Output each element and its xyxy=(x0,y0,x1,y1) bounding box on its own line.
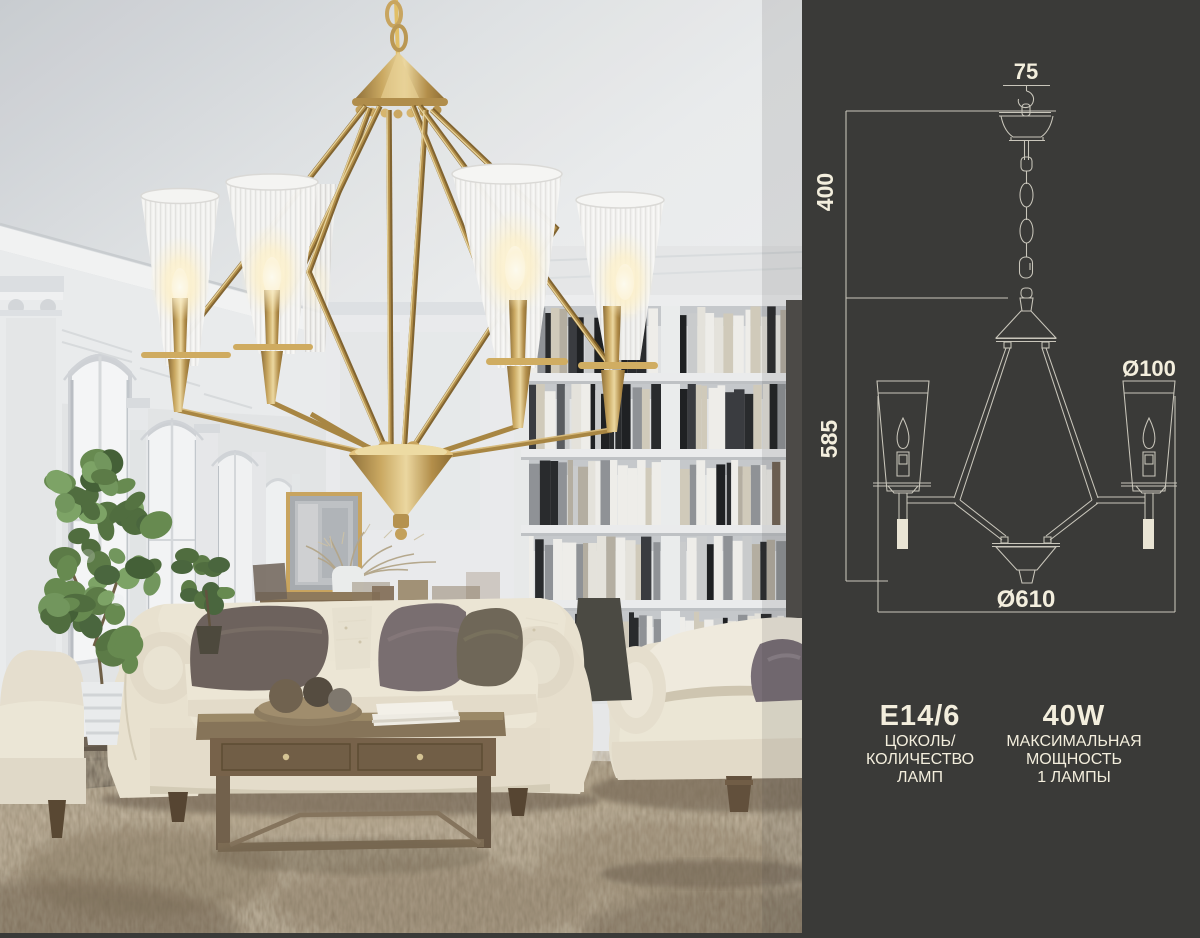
svg-text:75: 75 xyxy=(1014,59,1038,84)
svg-text:400: 400 xyxy=(812,173,838,211)
svg-text:Ø610: Ø610 xyxy=(997,586,1056,613)
svg-text:585: 585 xyxy=(816,420,842,459)
svg-text:Ø100: Ø100 xyxy=(1122,356,1176,381)
